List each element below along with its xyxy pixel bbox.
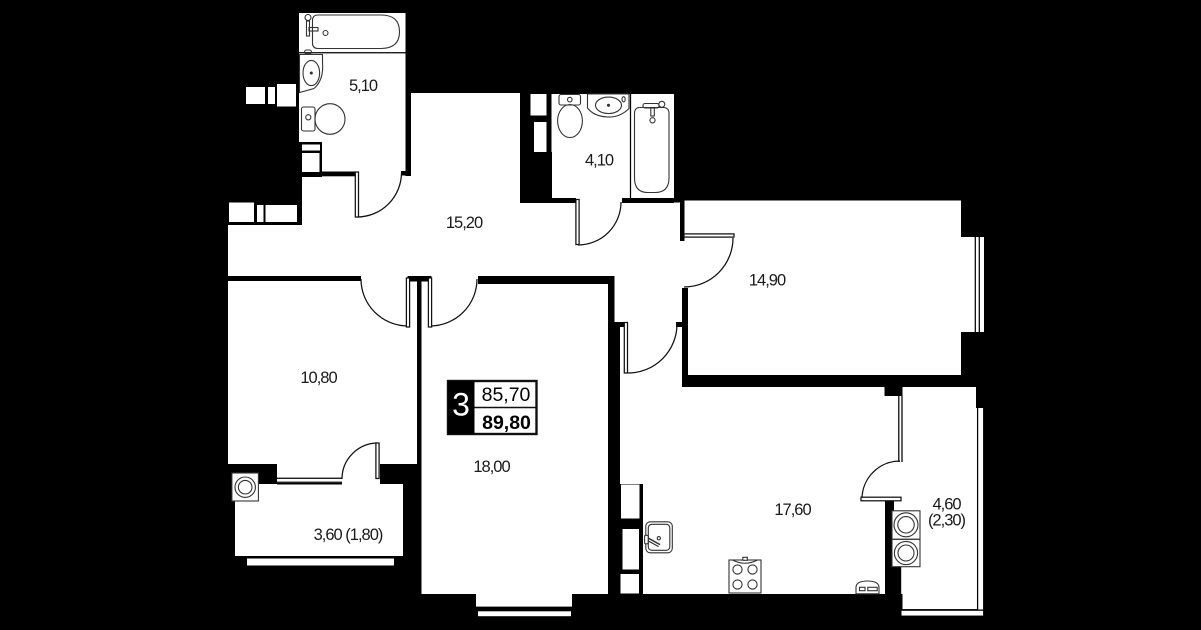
svg-text:3: 3 [452,387,470,423]
svg-text:14,90: 14,90 [749,272,786,290]
svg-text:(2,30): (2,30) [928,512,966,530]
svg-text:18,00: 18,00 [473,458,510,476]
svg-text:3,60 (1,80): 3,60 (1,80) [314,526,383,544]
svg-text:85,70: 85,70 [482,384,531,406]
svg-text:89,80: 89,80 [482,412,531,434]
svg-text:10,80: 10,80 [300,369,337,387]
svg-text:15,20: 15,20 [446,214,483,232]
svg-text:4,10: 4,10 [585,152,614,170]
svg-text:5,10: 5,10 [349,77,378,95]
svg-text:17,60: 17,60 [774,501,811,519]
